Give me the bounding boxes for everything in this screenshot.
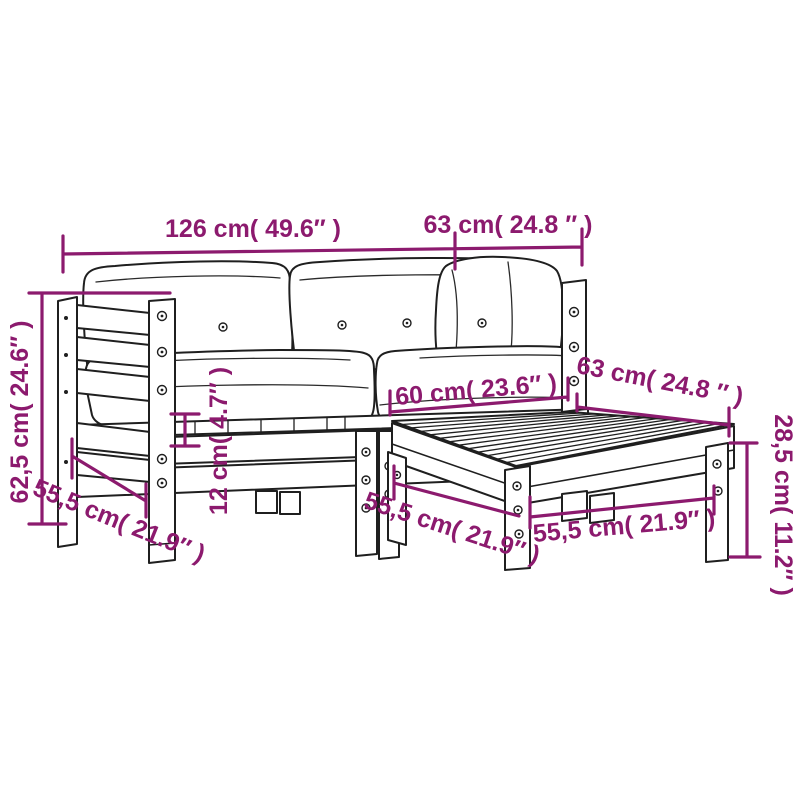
dimension-label-sofa-width: 126 cm( 49.6″ ) [165, 215, 341, 243]
furniture-dimension-diagram: 126 cm( 49.6″ ) 63 cm( 24.8 ″ ) 62,5 cm(… [0, 0, 800, 800]
dimension-label-sofa-depth-top: 63 cm( 24.8 ″ ) [423, 211, 592, 239]
dimension-sofa-depth-top: 63 cm( 24.8 ″ ) [423, 211, 592, 239]
diagram-canvas: 126 cm( 49.6″ ) 63 cm( 24.8 ″ ) 62,5 cm(… [0, 0, 800, 800]
dimension-label-ottoman-height: 28,5 cm( 11.2″ ) [769, 414, 797, 596]
dimension-label-sofa-height: 62,5 cm( 24.6″ ) [6, 321, 34, 504]
dimension-label-frame-rail-height: 12 cm( 4.7″ ) [205, 367, 233, 515]
sofa-right-back-post [562, 280, 586, 412]
